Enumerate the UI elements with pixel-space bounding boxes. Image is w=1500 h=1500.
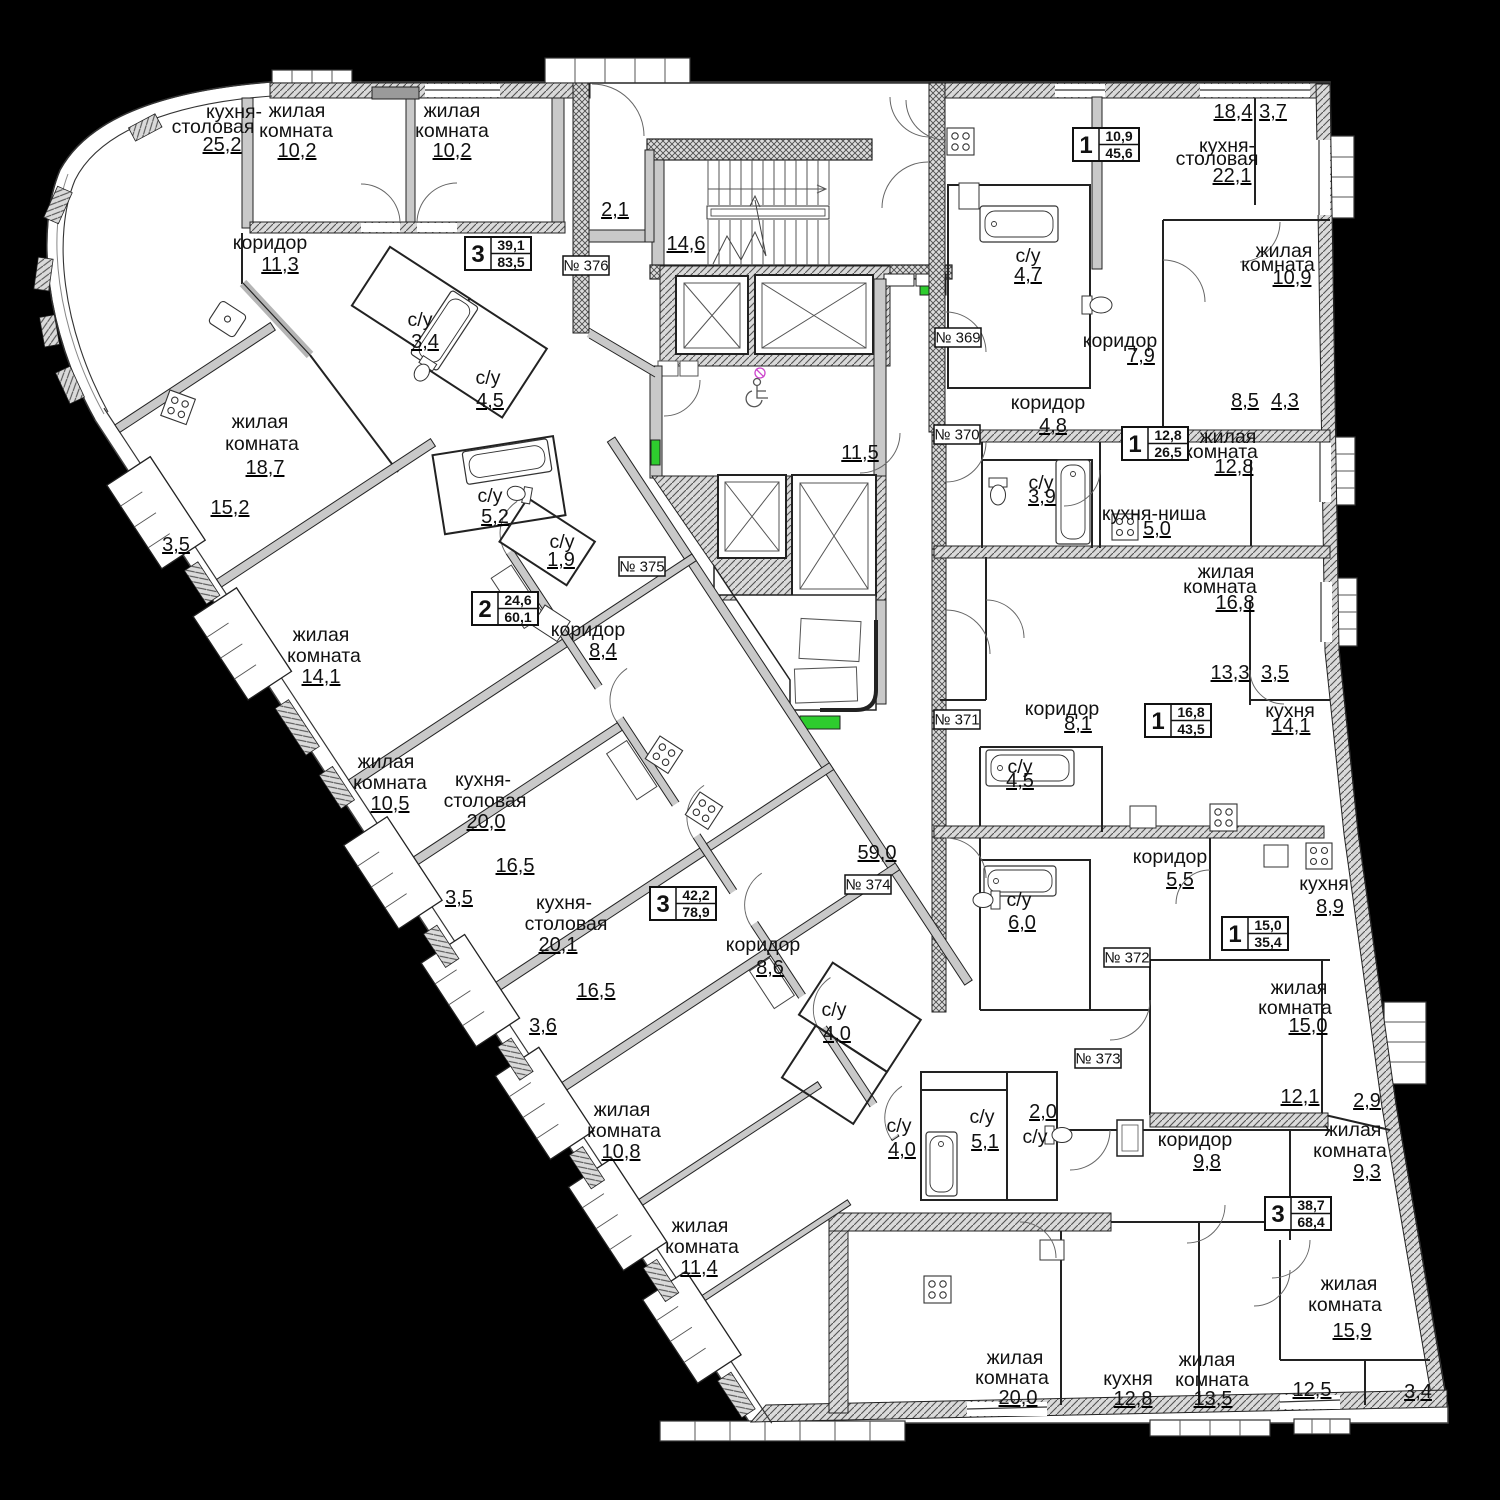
- svg-text:8,4: 8,4: [589, 640, 617, 662]
- svg-text:жилая: жилая: [424, 100, 481, 122]
- svg-text:с/у: с/у: [476, 367, 501, 389]
- svg-text:3,6: 3,6: [529, 1015, 557, 1037]
- svg-text:42,2: 42,2: [682, 887, 709, 903]
- svg-text:с/у: с/у: [887, 1115, 912, 1137]
- svg-text:с/у: с/у: [1007, 889, 1032, 911]
- svg-text:жилая: жилая: [358, 751, 415, 773]
- svg-text:кухня: кухня: [1103, 1368, 1153, 1390]
- svg-text:59,0: 59,0: [858, 842, 897, 864]
- svg-text:8,6: 8,6: [756, 957, 784, 979]
- svg-text:№ 372: № 372: [1104, 950, 1149, 967]
- svg-text:16,8: 16,8: [1177, 704, 1204, 720]
- svg-text:столовая: столовая: [444, 790, 527, 812]
- svg-text:коридор: коридор: [726, 934, 801, 956]
- svg-text:16,5: 16,5: [496, 855, 535, 877]
- svg-text:10,5: 10,5: [371, 793, 410, 815]
- svg-text:11,5: 11,5: [841, 442, 878, 464]
- svg-text:3: 3: [656, 891, 669, 918]
- svg-text:15,0: 15,0: [1289, 1015, 1328, 1037]
- svg-text:кухня: кухня: [1299, 873, 1349, 895]
- svg-text:с/у: с/у: [408, 309, 433, 331]
- svg-text:8,1: 8,1: [1064, 713, 1092, 735]
- svg-text:жилая: жилая: [1179, 1349, 1236, 1371]
- svg-text:11,4: 11,4: [680, 1257, 717, 1279]
- svg-text:7,9: 7,9: [1127, 345, 1155, 367]
- svg-text:3,5: 3,5: [162, 534, 190, 556]
- svg-text:3: 3: [1271, 1201, 1284, 1228]
- svg-text:3,7: 3,7: [1259, 101, 1287, 123]
- svg-text:№ 375: № 375: [619, 559, 664, 576]
- svg-text:жилая: жилая: [594, 1099, 651, 1121]
- svg-text:6,0: 6,0: [1008, 912, 1036, 934]
- svg-text:4,3: 4,3: [1271, 390, 1299, 412]
- svg-text:13,3: 13,3: [1211, 662, 1250, 684]
- svg-text:1: 1: [1228, 921, 1241, 948]
- svg-text:комната: комната: [259, 120, 333, 142]
- svg-text:жилая: жилая: [672, 1215, 729, 1237]
- svg-text:5,0: 5,0: [1143, 518, 1171, 540]
- svg-text:18,7: 18,7: [246, 457, 285, 479]
- svg-text:20,1: 20,1: [539, 934, 578, 956]
- svg-text:20,0: 20,0: [999, 1387, 1038, 1409]
- svg-text:с/у: с/у: [478, 485, 503, 507]
- svg-text:коридор: коридор: [1011, 392, 1086, 414]
- svg-text:15,9: 15,9: [1333, 1320, 1372, 1342]
- svg-text:35,4: 35,4: [1254, 934, 1281, 950]
- svg-text:4,7: 4,7: [1014, 264, 1042, 286]
- svg-text:комната: комната: [415, 120, 489, 142]
- svg-text:14,1: 14,1: [1272, 715, 1311, 737]
- svg-text:5,1: 5,1: [971, 1131, 999, 1153]
- svg-text:60,1: 60,1: [504, 609, 531, 625]
- svg-text:жилая: жилая: [293, 624, 350, 646]
- svg-text:83,5: 83,5: [497, 254, 524, 270]
- svg-text:№ 374: № 374: [845, 877, 890, 894]
- svg-text:комната: комната: [353, 772, 427, 794]
- svg-text:1,9: 1,9: [547, 549, 575, 571]
- svg-text:5,5: 5,5: [1166, 869, 1194, 891]
- svg-text:26,5: 26,5: [1154, 444, 1181, 460]
- svg-text:жилая: жилая: [987, 1347, 1044, 1369]
- svg-text:8,9: 8,9: [1316, 896, 1344, 918]
- svg-text:12,8: 12,8: [1154, 427, 1181, 443]
- svg-text:13,5: 13,5: [1194, 1388, 1233, 1410]
- svg-text:16,5: 16,5: [577, 980, 616, 1002]
- svg-text:кухня-: кухня-: [455, 769, 511, 791]
- svg-text:№ 370: № 370: [934, 427, 979, 444]
- svg-text:жилая: жилая: [232, 411, 289, 433]
- svg-text:10,2: 10,2: [433, 140, 472, 162]
- svg-text:комната: комната: [665, 1236, 739, 1258]
- svg-text:9,3: 9,3: [1353, 1161, 1381, 1183]
- svg-text:комната: комната: [975, 1367, 1049, 1389]
- svg-text:2,1: 2,1: [601, 199, 629, 221]
- svg-text:38,7: 38,7: [1297, 1197, 1324, 1213]
- svg-text:16,8: 16,8: [1216, 592, 1255, 614]
- svg-text:3,5: 3,5: [445, 887, 473, 909]
- svg-text:кухня-: кухня-: [536, 892, 592, 914]
- svg-text:4,5: 4,5: [1006, 770, 1034, 792]
- svg-text:3,4: 3,4: [411, 331, 439, 353]
- svg-text:3,4: 3,4: [1404, 1381, 1432, 1403]
- svg-text:15,2: 15,2: [211, 497, 250, 519]
- svg-text:2,0: 2,0: [1029, 1101, 1057, 1123]
- svg-text:3,5: 3,5: [1261, 662, 1289, 684]
- svg-text:1: 1: [1128, 431, 1141, 458]
- svg-text:с/у: с/у: [970, 1106, 995, 1128]
- svg-text:12,8: 12,8: [1215, 456, 1254, 478]
- svg-text:1: 1: [1151, 708, 1164, 735]
- svg-text:43,5: 43,5: [1177, 721, 1204, 737]
- svg-text:5,2: 5,2: [481, 506, 509, 528]
- svg-text:10,8: 10,8: [602, 1141, 641, 1163]
- svg-text:с/у: с/у: [1023, 1126, 1048, 1148]
- svg-text:комната: комната: [287, 645, 361, 667]
- svg-text:9,8: 9,8: [1193, 1151, 1221, 1173]
- svg-text:жилая: жилая: [269, 100, 326, 122]
- svg-text:4,5: 4,5: [476, 390, 504, 412]
- svg-text:2: 2: [478, 596, 491, 623]
- svg-text:18,4: 18,4: [1214, 101, 1253, 123]
- svg-text:12,1: 12,1: [1281, 1086, 1320, 1108]
- svg-text:4,0: 4,0: [888, 1139, 916, 1161]
- svg-text:15,0: 15,0: [1254, 917, 1281, 933]
- svg-text:10,9: 10,9: [1105, 128, 1132, 144]
- svg-text:жилая: жилая: [1321, 1273, 1378, 1295]
- svg-text:коридор: коридор: [1158, 1129, 1233, 1151]
- svg-text:№ 371: № 371: [934, 712, 979, 729]
- svg-text:1: 1: [1079, 132, 1092, 159]
- svg-text:3,9: 3,9: [1028, 486, 1056, 508]
- svg-text:25,2: 25,2: [203, 134, 242, 156]
- svg-text:№ 373: № 373: [1075, 1051, 1120, 1068]
- svg-text:жилая: жилая: [1271, 977, 1328, 999]
- svg-text:комната: комната: [1313, 1140, 1387, 1162]
- svg-text:с/у: с/у: [822, 999, 847, 1021]
- svg-text:20,0: 20,0: [467, 811, 506, 833]
- svg-text:78,9: 78,9: [682, 904, 709, 920]
- svg-text:4,0: 4,0: [823, 1023, 851, 1045]
- svg-text:24,6: 24,6: [504, 592, 531, 608]
- svg-text:14,6: 14,6: [667, 233, 706, 255]
- svg-text:12,5: 12,5: [1293, 1379, 1332, 1401]
- svg-text:комната: комната: [1308, 1294, 1382, 1316]
- svg-text:3: 3: [471, 241, 484, 268]
- svg-text:коридор: коридор: [233, 232, 308, 254]
- svg-text:жилая: жилая: [1325, 1119, 1382, 1141]
- svg-text:комната: комната: [225, 433, 299, 455]
- svg-text:10,2: 10,2: [278, 140, 317, 162]
- svg-text:коридор: коридор: [1133, 846, 1208, 868]
- svg-text:№ 369: № 369: [935, 330, 980, 347]
- svg-text:14,1: 14,1: [302, 666, 341, 688]
- svg-text:8,5: 8,5: [1231, 390, 1259, 412]
- svg-text:комната: комната: [587, 1120, 661, 1142]
- svg-text:столовая: столовая: [525, 913, 608, 935]
- svg-text:22,1: 22,1: [1213, 165, 1252, 187]
- svg-text:10,9: 10,9: [1273, 267, 1312, 289]
- svg-text:4,8: 4,8: [1039, 415, 1067, 437]
- svg-text:№ 376: № 376: [563, 258, 608, 275]
- svg-text:коридор: коридор: [551, 619, 626, 641]
- svg-text:68,4: 68,4: [1297, 1214, 1324, 1230]
- svg-text:39,1: 39,1: [497, 237, 524, 253]
- svg-text:2,9: 2,9: [1353, 1090, 1381, 1112]
- svg-text:45,6: 45,6: [1105, 145, 1132, 161]
- svg-text:11,3: 11,3: [261, 254, 298, 276]
- svg-text:12,8: 12,8: [1114, 1388, 1153, 1410]
